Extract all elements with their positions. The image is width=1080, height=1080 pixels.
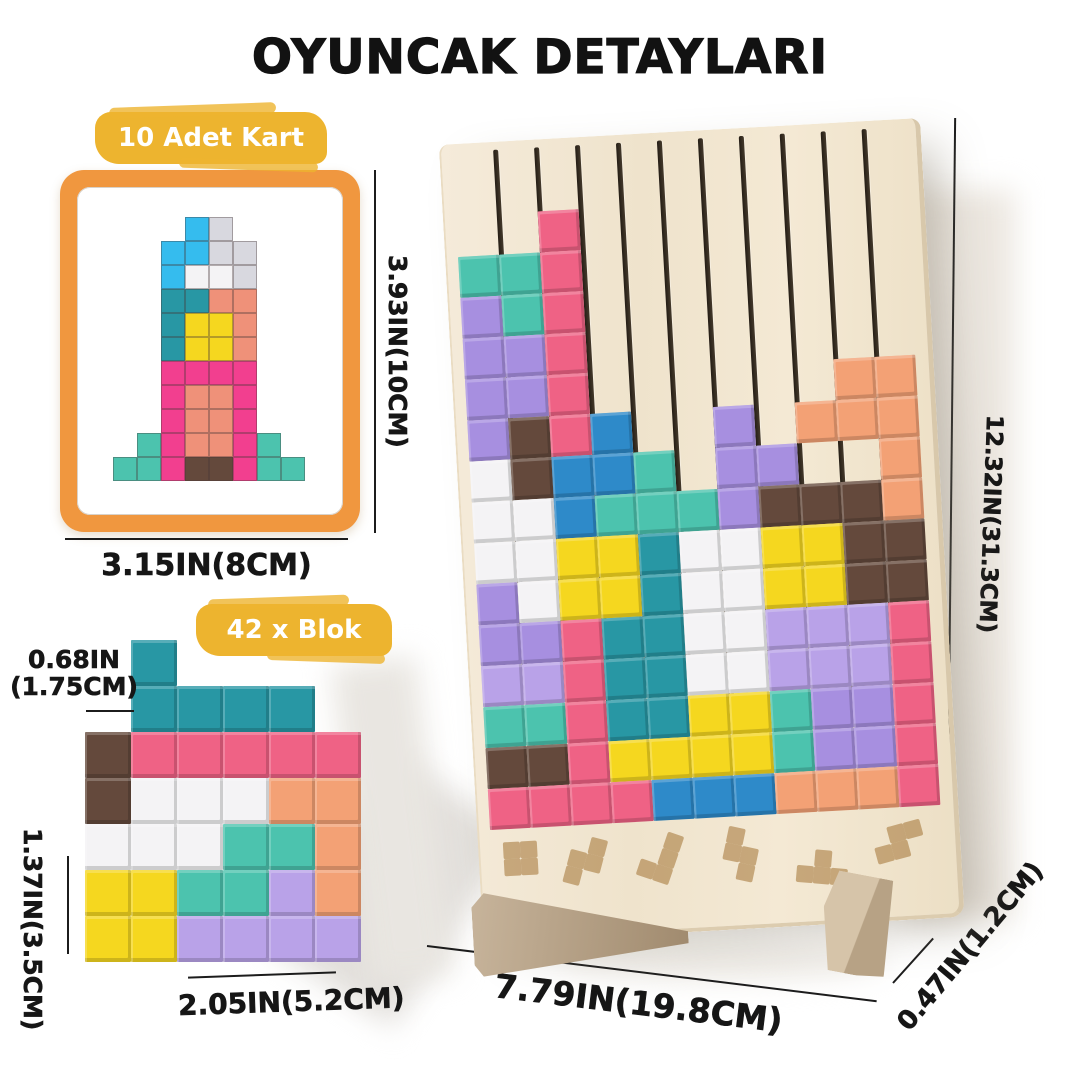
figure-block bbox=[223, 732, 269, 778]
figure-block bbox=[113, 457, 137, 481]
figure-block bbox=[269, 870, 315, 916]
block-height-line bbox=[67, 856, 69, 954]
figure-block bbox=[177, 732, 223, 778]
card-count-badge-label: 10 Adet Kart bbox=[118, 123, 304, 153]
figure-block bbox=[504, 858, 522, 876]
figure-block bbox=[161, 241, 185, 265]
figure-block bbox=[185, 361, 209, 385]
figure-block bbox=[554, 496, 597, 539]
figure-block bbox=[520, 841, 538, 859]
figure-block bbox=[185, 457, 209, 481]
block-thickness-line2: (1.75CM) bbox=[10, 673, 138, 700]
figure-block bbox=[209, 409, 233, 433]
figure-block bbox=[717, 487, 760, 530]
figure-block bbox=[233, 385, 257, 409]
figure-block bbox=[469, 459, 512, 502]
figure-block bbox=[881, 477, 924, 520]
figure-block bbox=[633, 450, 676, 493]
figure-block bbox=[815, 769, 858, 812]
figure-block bbox=[715, 446, 758, 489]
figure-block bbox=[269, 778, 315, 824]
figure-block bbox=[592, 453, 635, 496]
figure-block bbox=[131, 778, 177, 824]
figure-block bbox=[508, 416, 551, 459]
figure-block bbox=[551, 455, 594, 498]
block-thickness-label: 0.68IN (1.75CM) bbox=[10, 646, 138, 700]
figure-block bbox=[874, 355, 917, 398]
figure-block bbox=[761, 525, 804, 568]
figure-block bbox=[209, 385, 233, 409]
figure-block bbox=[131, 824, 177, 870]
figure-block bbox=[549, 414, 592, 457]
figure-block bbox=[547, 373, 590, 416]
figure-block bbox=[510, 457, 553, 500]
figure-block bbox=[893, 682, 936, 725]
figure-block bbox=[567, 741, 610, 784]
figure-block bbox=[137, 457, 161, 481]
figure-block bbox=[886, 559, 929, 602]
block-count-badge-label: 42 x Blok bbox=[227, 615, 362, 645]
block-thickness-line bbox=[86, 710, 134, 712]
figure-block bbox=[840, 480, 883, 523]
figure-block bbox=[223, 870, 269, 916]
figure-block bbox=[520, 621, 563, 664]
figure-block bbox=[556, 537, 599, 580]
figure-block bbox=[636, 491, 679, 534]
figure-block bbox=[513, 498, 556, 541]
figure-block bbox=[463, 337, 506, 380]
figure-block bbox=[611, 780, 654, 823]
figure-block bbox=[729, 691, 772, 734]
figure-block bbox=[85, 824, 131, 870]
card-figure bbox=[113, 217, 305, 481]
figure-block bbox=[177, 778, 223, 824]
figure-block bbox=[808, 646, 851, 689]
figure-block bbox=[185, 313, 209, 337]
figure-block bbox=[269, 732, 315, 778]
figure-block bbox=[529, 785, 572, 828]
figure-block bbox=[486, 746, 529, 789]
figure-block bbox=[233, 361, 257, 385]
figure-block bbox=[209, 241, 233, 265]
figure-block bbox=[724, 609, 767, 652]
figure-block bbox=[476, 582, 519, 625]
figure-block bbox=[85, 916, 131, 962]
figure-block bbox=[209, 217, 233, 241]
figure-block bbox=[856, 766, 899, 809]
figure-block bbox=[796, 865, 814, 883]
figure-block bbox=[233, 409, 257, 433]
figure-block bbox=[811, 687, 854, 730]
figure-block bbox=[645, 655, 688, 698]
figure-block bbox=[209, 337, 233, 361]
figure-block bbox=[209, 457, 233, 481]
figure-block bbox=[524, 703, 567, 746]
figure-block bbox=[842, 521, 885, 564]
figure-block bbox=[257, 433, 281, 457]
figure-block bbox=[209, 289, 233, 313]
figure-block bbox=[688, 694, 731, 737]
figure-block bbox=[185, 289, 209, 313]
figure-block bbox=[269, 916, 315, 962]
figure-block bbox=[765, 607, 808, 650]
figure-block bbox=[465, 378, 508, 421]
figure-block bbox=[847, 603, 890, 646]
figure-block bbox=[185, 337, 209, 361]
figure-block bbox=[315, 824, 361, 870]
product-detail-infographic: OYUNCAK DETAYLARI 10 Adet Kart 3.93IN(10… bbox=[0, 0, 1080, 1080]
figure-block bbox=[638, 532, 681, 575]
figure-block bbox=[640, 573, 683, 616]
figure-block bbox=[813, 866, 831, 884]
figure-block bbox=[774, 771, 817, 814]
figure-block bbox=[209, 433, 233, 457]
figure-block bbox=[85, 778, 131, 824]
figure-block bbox=[521, 857, 539, 875]
block-width-label: 2.05IN(5.2CM) bbox=[177, 983, 358, 1022]
figure-block bbox=[177, 686, 223, 732]
figure-block bbox=[233, 313, 257, 337]
figure-block bbox=[315, 732, 361, 778]
figure-block bbox=[501, 293, 544, 336]
figure-block bbox=[563, 659, 606, 702]
board-figure bbox=[456, 191, 941, 830]
figure-block bbox=[233, 289, 257, 313]
figure-block bbox=[479, 623, 522, 666]
figure-block bbox=[458, 255, 501, 298]
figure-block bbox=[185, 265, 209, 289]
figure-block bbox=[223, 778, 269, 824]
figure-block bbox=[504, 334, 547, 377]
figure-block bbox=[652, 778, 695, 821]
figure-block bbox=[767, 648, 810, 691]
figure-block bbox=[233, 433, 257, 457]
figure-block bbox=[209, 361, 233, 385]
figure-block bbox=[686, 653, 729, 696]
figure-block bbox=[772, 730, 815, 773]
figure-block bbox=[161, 409, 185, 433]
figure-block bbox=[649, 737, 692, 780]
figure-block bbox=[676, 489, 719, 532]
figure-block bbox=[542, 291, 585, 334]
figure-block bbox=[177, 916, 223, 962]
figure-block bbox=[460, 296, 503, 339]
figure-block bbox=[131, 870, 177, 916]
puzzle-card-face bbox=[77, 187, 343, 515]
figure-block bbox=[833, 357, 876, 400]
figure-block bbox=[642, 614, 685, 657]
figure-block bbox=[558, 578, 601, 621]
figure-block bbox=[601, 616, 644, 659]
block-height-label: 1.37IN(3.5CM) bbox=[18, 828, 47, 1068]
figure-block bbox=[836, 398, 879, 441]
figure-block bbox=[223, 824, 269, 870]
figure-block bbox=[499, 252, 542, 295]
figure-block bbox=[233, 457, 257, 481]
figure-block bbox=[735, 863, 755, 883]
figure-block bbox=[883, 518, 926, 561]
figure-block bbox=[161, 361, 185, 385]
figure-block bbox=[177, 870, 223, 916]
figure-block bbox=[888, 600, 931, 643]
figure-block bbox=[526, 744, 569, 787]
figure-block bbox=[599, 575, 642, 618]
figure-block bbox=[647, 696, 690, 739]
figure-block bbox=[161, 385, 185, 409]
figure-block bbox=[895, 723, 938, 766]
figure-block bbox=[731, 732, 774, 775]
block-count-badge: 42 x Blok bbox=[196, 604, 392, 656]
figure-block bbox=[540, 250, 583, 293]
figure-block bbox=[315, 916, 361, 962]
block-thickness-line1: 0.68IN bbox=[10, 646, 138, 673]
figure-block bbox=[269, 686, 315, 732]
figure-block bbox=[257, 457, 281, 481]
figure-block bbox=[854, 725, 897, 768]
figure-block bbox=[606, 698, 649, 741]
figure-block bbox=[137, 433, 161, 457]
figure-block bbox=[681, 571, 724, 614]
figure-block bbox=[713, 405, 756, 448]
figure-block bbox=[506, 375, 549, 418]
figure-block bbox=[131, 916, 177, 962]
card-height-line bbox=[374, 170, 376, 533]
figure-block bbox=[597, 534, 640, 577]
figure-block bbox=[161, 289, 185, 313]
figure-block bbox=[799, 482, 842, 525]
figure-block bbox=[756, 443, 799, 486]
figure-block bbox=[515, 539, 558, 582]
figure-block bbox=[683, 612, 726, 655]
figure-block bbox=[185, 433, 209, 457]
figure-block bbox=[590, 412, 633, 455]
figure-block bbox=[877, 396, 920, 439]
figure-block bbox=[161, 337, 185, 361]
figure-block bbox=[209, 265, 233, 289]
figure-block bbox=[604, 657, 647, 700]
figure-block bbox=[472, 500, 515, 543]
figure-block bbox=[538, 209, 581, 252]
figure-block bbox=[474, 541, 517, 584]
figure-block bbox=[85, 732, 131, 778]
figure-block bbox=[544, 332, 587, 375]
figure-block bbox=[522, 662, 565, 705]
figure-block bbox=[722, 568, 765, 611]
figure-block bbox=[565, 700, 608, 743]
figure-block bbox=[177, 824, 223, 870]
card-width-line bbox=[65, 538, 348, 540]
figure-block bbox=[488, 787, 531, 830]
figure-block bbox=[209, 313, 233, 337]
figure-block bbox=[763, 566, 806, 609]
figure-block bbox=[813, 728, 856, 771]
figure-block bbox=[897, 764, 940, 807]
figure-block bbox=[733, 773, 776, 816]
card-width-label: 3.15IN(8CM) bbox=[65, 548, 348, 583]
figure-block bbox=[223, 916, 269, 962]
figure-block bbox=[517, 580, 560, 623]
figure-block bbox=[85, 870, 131, 916]
figure-block bbox=[281, 457, 305, 481]
figure-block bbox=[758, 484, 801, 527]
figure-block bbox=[770, 689, 813, 732]
figure-block bbox=[233, 265, 257, 289]
figure-block bbox=[814, 849, 832, 867]
figure-block bbox=[467, 418, 510, 461]
page-title: OYUNCAK DETAYLARI bbox=[0, 30, 1080, 85]
figure-block bbox=[185, 217, 209, 241]
figure-block bbox=[185, 241, 209, 265]
figure-block bbox=[845, 562, 888, 605]
card-count-badge: 10 Adet Kart bbox=[95, 112, 327, 164]
figure-block bbox=[795, 400, 838, 443]
figure-block bbox=[483, 705, 526, 748]
figure-block bbox=[233, 241, 257, 265]
figure-block bbox=[570, 782, 613, 825]
figure-block bbox=[161, 457, 185, 481]
figure-block bbox=[185, 385, 209, 409]
figure-block bbox=[503, 841, 521, 859]
puzzle-card bbox=[60, 170, 360, 532]
figure-block bbox=[315, 778, 361, 824]
figure-block bbox=[849, 643, 892, 686]
figure-block bbox=[269, 824, 315, 870]
figure-block bbox=[690, 735, 733, 778]
figure-block bbox=[185, 409, 209, 433]
figure-block bbox=[727, 650, 770, 693]
figure-block bbox=[720, 528, 763, 571]
figure-block bbox=[223, 686, 269, 732]
figure-block bbox=[804, 564, 847, 607]
figure-block bbox=[679, 530, 722, 573]
figure-block bbox=[806, 605, 849, 648]
figure-block bbox=[595, 493, 638, 536]
figure-block bbox=[161, 433, 185, 457]
figure-block bbox=[802, 523, 845, 566]
figure-block bbox=[561, 619, 604, 662]
card-height-label: 3.93IN(10CM) bbox=[383, 255, 412, 545]
wooden-board bbox=[439, 118, 965, 944]
figure-block bbox=[879, 437, 922, 480]
figure-block bbox=[315, 870, 361, 916]
figure-block bbox=[481, 664, 524, 707]
figure-block bbox=[890, 641, 933, 684]
figure-block bbox=[131, 732, 177, 778]
figure-block bbox=[161, 313, 185, 337]
figure-block bbox=[233, 337, 257, 361]
figure-block bbox=[692, 775, 735, 818]
figure-block bbox=[161, 265, 185, 289]
figure-block bbox=[852, 684, 895, 727]
figure-block bbox=[608, 739, 651, 782]
